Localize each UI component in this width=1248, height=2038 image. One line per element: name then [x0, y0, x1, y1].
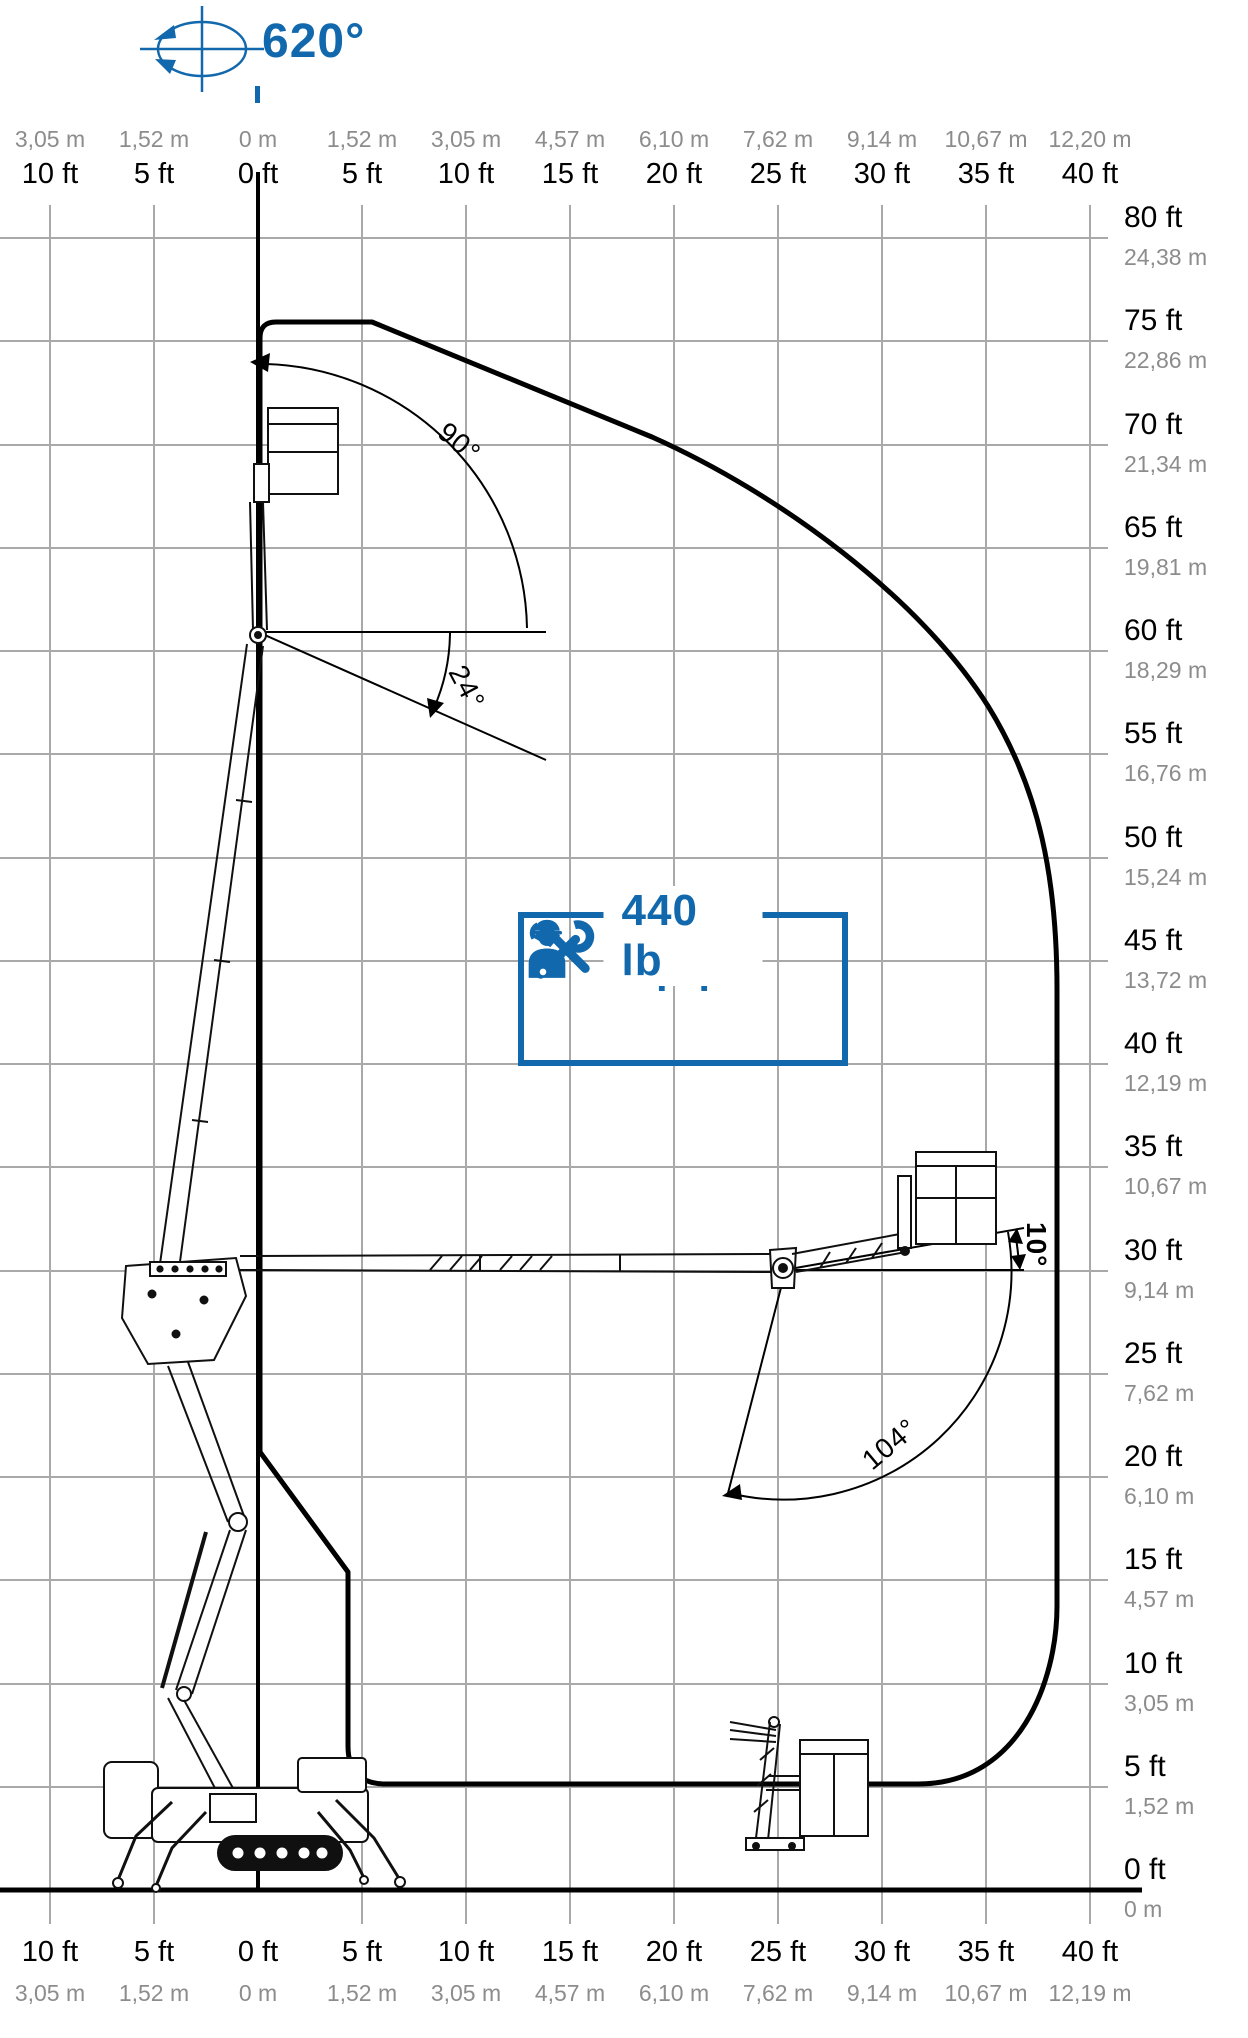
top-axis-feet-label: 40 ft — [1062, 158, 1118, 191]
rotation-icon — [140, 6, 264, 92]
right-axis-meter-label: 15,24 m — [1124, 864, 1207, 891]
top-axis-feet-label: 5 ft — [134, 158, 174, 191]
right-axis-meter-label: 3,05 m — [1124, 1690, 1194, 1717]
right-axis-feet-label: 5 ft — [1124, 1750, 1166, 1784]
bottom-axis-feet-label: 20 ft — [646, 1936, 702, 1969]
bottom-axis-feet-label: 10 ft — [22, 1936, 78, 1969]
top-axis-feet-label: 15 ft — [542, 158, 598, 191]
arc-90 — [266, 364, 527, 628]
top-axis-feet-label: 0 ft — [238, 158, 278, 191]
bottom-axis-feet-label: 5 ft — [134, 1936, 174, 1969]
right-axis-meter-label: 22,86 m — [1124, 347, 1207, 374]
right-axis-meter-label: 13,72 m — [1124, 967, 1207, 994]
right-axis-feet-label: 65 ft — [1124, 511, 1182, 545]
top-axis-meter-label: 7,62 m — [743, 126, 813, 153]
top-axis-meter-label: 1,52 m — [327, 126, 397, 153]
bottom-axis-meter-label: 1,52 m — [119, 1980, 189, 2007]
top-axis-meter-label: 3,05 m — [15, 126, 85, 153]
top-axis-feet-label: 10 ft — [22, 158, 78, 191]
tools-icon — [524, 918, 600, 982]
rotation-range-label: 620° — [262, 14, 365, 69]
top-axis-meter-label: 3,05 m — [431, 126, 501, 153]
right-axis-meter-label: 18,29 m — [1124, 657, 1207, 684]
right-axis-feet-label: 35 ft — [1124, 1130, 1182, 1164]
right-axis-feet-label: 0 ft — [1124, 1853, 1166, 1887]
right-axis-feet-label: 25 ft — [1124, 1337, 1182, 1371]
right-axis-feet-label: 70 ft — [1124, 408, 1182, 442]
bottom-axis-feet-label: 25 ft — [750, 1936, 806, 1969]
right-axis-meter-label: 19,81 m — [1124, 554, 1207, 581]
capacity-label: 440 lb — [604, 886, 763, 986]
machine-boom-raised — [158, 408, 338, 1284]
top-axis-meter-label: 12,20 m — [1048, 126, 1131, 153]
right-axis-meter-label: 10,67 m — [1124, 1173, 1207, 1200]
top-axis-feet-label: 25 ft — [750, 158, 806, 191]
bottom-axis-feet-label: 0 ft — [238, 1936, 278, 1969]
top-axis-meter-label: 1,52 m — [119, 126, 189, 153]
right-axis-meter-label: 1,52 m — [1124, 1793, 1194, 1820]
angle-label-10: 10° — [1020, 1222, 1052, 1267]
right-axis-feet-label: 20 ft — [1124, 1440, 1182, 1474]
right-axis-meter-label: 21,34 m — [1124, 451, 1207, 478]
arrowhead — [427, 698, 444, 718]
top-axis-meter-label: 4,57 m — [535, 126, 605, 153]
top-axis-meter-label: 9,14 m — [847, 126, 917, 153]
capacity-box: 440 lb + + — [518, 912, 848, 1066]
right-axis-feet-label: 80 ft — [1124, 201, 1182, 235]
bottom-axis-meter-label: 3,05 m — [15, 1980, 85, 2007]
top-axis-feet-label: 20 ft — [646, 158, 702, 191]
right-axis-meter-label: 16,76 m — [1124, 760, 1207, 787]
bottom-axis-meter-label: 3,05 m — [431, 1980, 501, 2007]
right-axis-meter-label: 4,57 m — [1124, 1586, 1194, 1613]
bottom-axis-meter-label: 0 m — [239, 1980, 277, 2007]
right-axis-meter-label: 24,38 m — [1124, 244, 1207, 271]
arc-24 — [434, 632, 450, 708]
right-axis-feet-label: 30 ft — [1124, 1234, 1182, 1268]
right-axis-feet-label: 55 ft — [1124, 717, 1182, 751]
working-envelope-diagram: 620° 90° 24° 10° 104° 440 lb + + — [0, 0, 1248, 2038]
bottom-axis-meter-label: 9,14 m — [847, 1980, 917, 2007]
bottom-axis-feet-label: 15 ft — [542, 1936, 598, 1969]
right-axis-meter-label: 9,14 m — [1124, 1277, 1194, 1304]
bottom-axis-feet-label: 5 ft — [342, 1936, 382, 1969]
top-axis-meter-label: 0 m — [239, 126, 277, 153]
right-axis-feet-label: 60 ft — [1124, 614, 1182, 648]
bottom-axis-meter-label: 12,19 m — [1048, 1980, 1131, 2007]
top-axis-feet-label: 30 ft — [854, 158, 910, 191]
rotation-arrowhead — [154, 25, 176, 40]
axis-top-tick — [255, 86, 260, 103]
right-axis-feet-label: 15 ft — [1124, 1543, 1182, 1577]
right-axis-feet-label: 45 ft — [1124, 924, 1182, 958]
rotation-arrowhead — [155, 59, 176, 74]
top-axis-feet-label: 5 ft — [342, 158, 382, 191]
bottom-axis-feet-label: 30 ft — [854, 1936, 910, 1969]
down-sweep-line — [727, 1276, 784, 1497]
bottom-axis-meter-label: 10,67 m — [944, 1980, 1027, 2007]
top-axis-feet-label: 35 ft — [958, 158, 1014, 191]
machine-chassis — [104, 1258, 405, 1892]
right-axis-meter-label: 6,10 m — [1124, 1483, 1194, 1510]
top-axis-meter-label: 10,67 m — [944, 126, 1027, 153]
top-axis-meter-label: 6,10 m — [639, 126, 709, 153]
right-axis-feet-label: 75 ft — [1124, 304, 1182, 338]
right-axis-meter-label: 0 m — [1124, 1896, 1162, 1923]
right-axis-meter-label: 7,62 m — [1124, 1380, 1194, 1407]
bottom-axis-feet-label: 10 ft — [438, 1936, 494, 1969]
bottom-axis-meter-label: 4,57 m — [535, 1980, 605, 2007]
right-axis-meter-label: 12,19 m — [1124, 1070, 1207, 1097]
top-axis-feet-label: 10 ft — [438, 158, 494, 191]
arrowhead — [722, 1484, 742, 1500]
bottom-axis-meter-label: 6,10 m — [639, 1980, 709, 2007]
bottom-axis-feet-label: 35 ft — [958, 1936, 1014, 1969]
bottom-axis-meter-label: 7,62 m — [743, 1980, 813, 2007]
right-axis-feet-label: 50 ft — [1124, 821, 1182, 855]
bottom-axis-meter-label: 1,52 m — [327, 1980, 397, 2007]
right-axis-feet-label: 40 ft — [1124, 1027, 1182, 1061]
right-axis-feet-label: 10 ft — [1124, 1647, 1182, 1681]
bottom-axis-feet-label: 40 ft — [1062, 1936, 1118, 1969]
